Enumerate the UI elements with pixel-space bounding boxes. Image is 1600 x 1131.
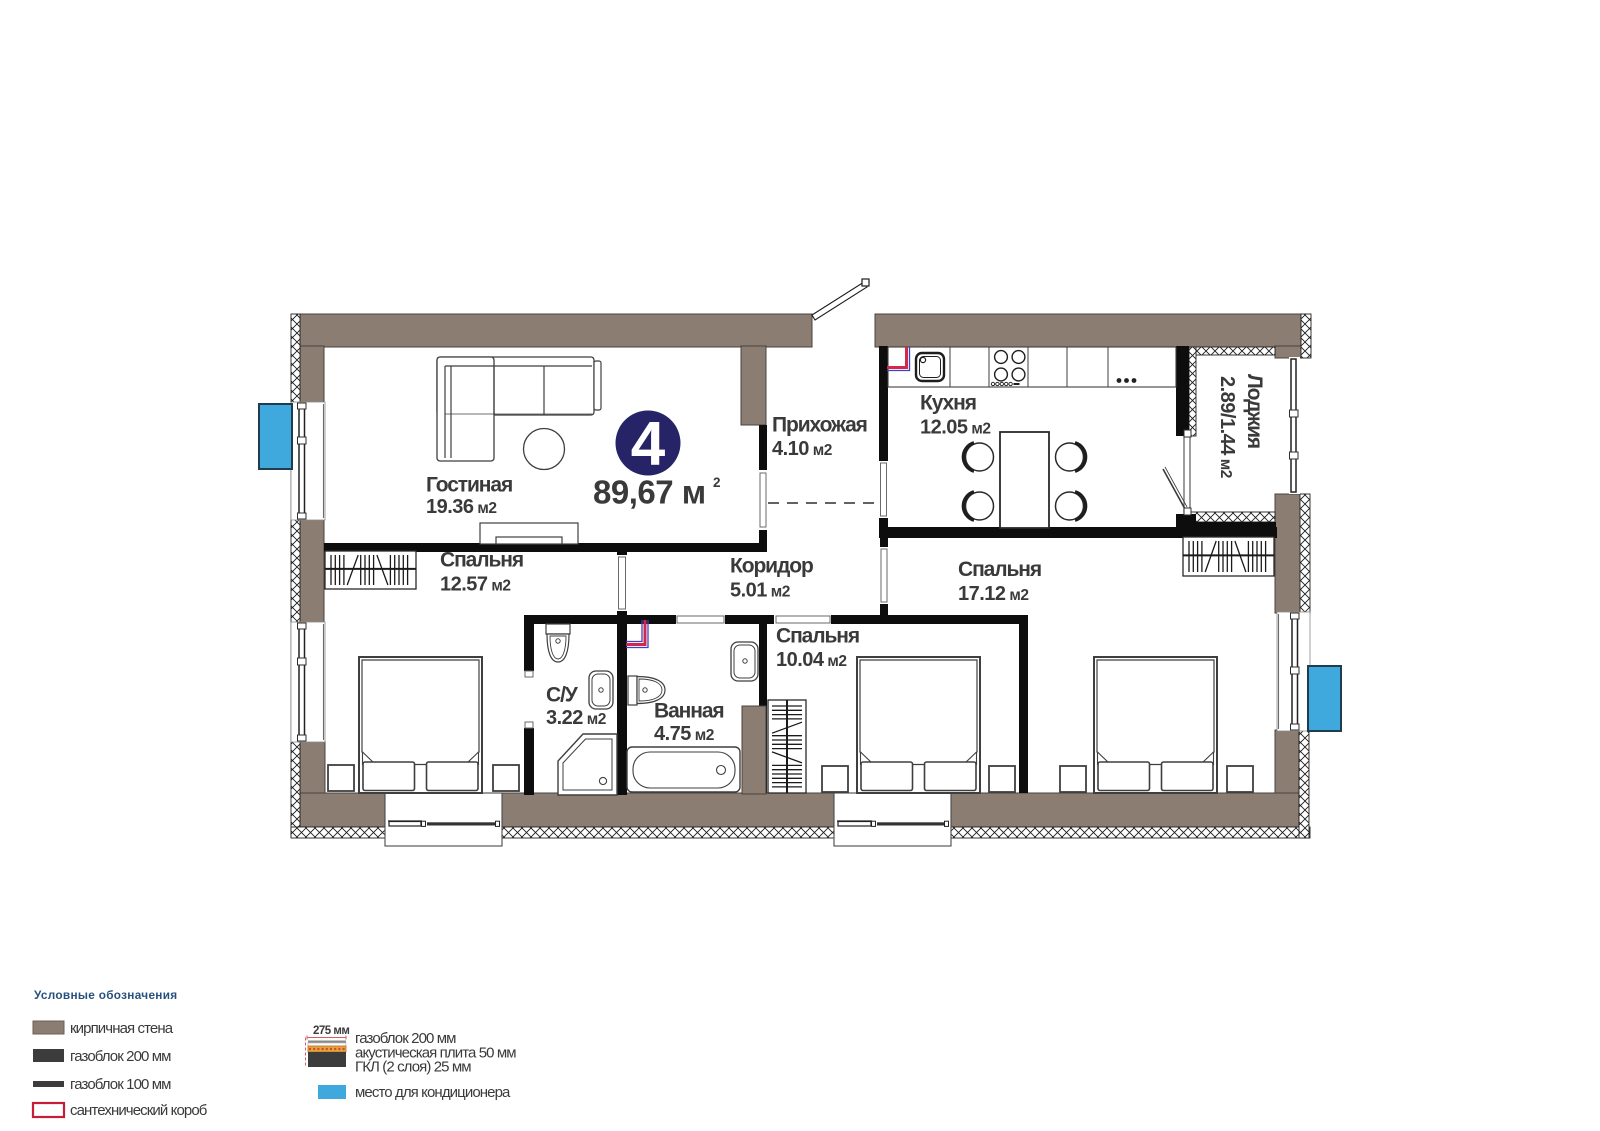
svg-text:4: 4 xyxy=(631,410,666,479)
svg-text:Спальня: Спальня xyxy=(776,625,859,648)
svg-text:газоблок 200 мм: газоблок 200 мм xyxy=(70,1048,171,1065)
svg-text:12.05 м2: 12.05 м2 xyxy=(920,417,990,439)
svg-text:17.12 м2: 17.12 м2 xyxy=(958,583,1028,605)
svg-text:4.10 м2: 4.10 м2 xyxy=(772,438,832,460)
svg-text:место для кондиционера: место для кондиционера xyxy=(355,1084,511,1101)
svg-text:Гостиная: Гостиная xyxy=(426,474,512,497)
svg-text:Условные обозначения: Условные обозначения xyxy=(34,988,177,1002)
svg-text:5.01 м2: 5.01 м2 xyxy=(730,580,790,602)
svg-text:2.89/1.44 м2: 2.89/1.44 м2 xyxy=(1216,376,1238,478)
svg-text:ГКЛ (2 слоя) 25 мм: ГКЛ (2 слоя) 25 мм xyxy=(355,1059,471,1076)
svg-text:Спальня: Спальня xyxy=(958,558,1041,581)
svg-text:газоблок 100 мм: газоблок 100 мм xyxy=(70,1076,171,1093)
svg-text:Лоджия: Лоджия xyxy=(1243,374,1266,448)
svg-text:275 мм: 275 мм xyxy=(313,1025,349,1037)
svg-text:2: 2 xyxy=(713,475,721,490)
svg-text:Прихожая: Прихожая xyxy=(772,414,867,437)
svg-text:Спальня: Спальня xyxy=(440,549,523,572)
svg-text:Ванная: Ванная xyxy=(654,700,724,723)
svg-text:кирпичная стена: кирпичная стена xyxy=(70,1020,174,1037)
svg-text:сантехнический короб: сантехнический короб xyxy=(70,1102,207,1119)
svg-text:С/У: С/У xyxy=(546,684,579,707)
svg-text:4.75 м2: 4.75 м2 xyxy=(654,723,714,745)
svg-text:10.04 м2: 10.04 м2 xyxy=(776,649,846,671)
svg-text:89,67 м: 89,67 м xyxy=(593,474,706,511)
svg-text:3.22 м2: 3.22 м2 xyxy=(546,707,606,729)
svg-text:Коридор: Коридор xyxy=(730,555,813,578)
svg-text:19.36 м2: 19.36 м2 xyxy=(426,496,496,518)
svg-text:Кухня: Кухня xyxy=(920,392,976,415)
svg-text:12.57 м2: 12.57 м2 xyxy=(440,574,510,596)
